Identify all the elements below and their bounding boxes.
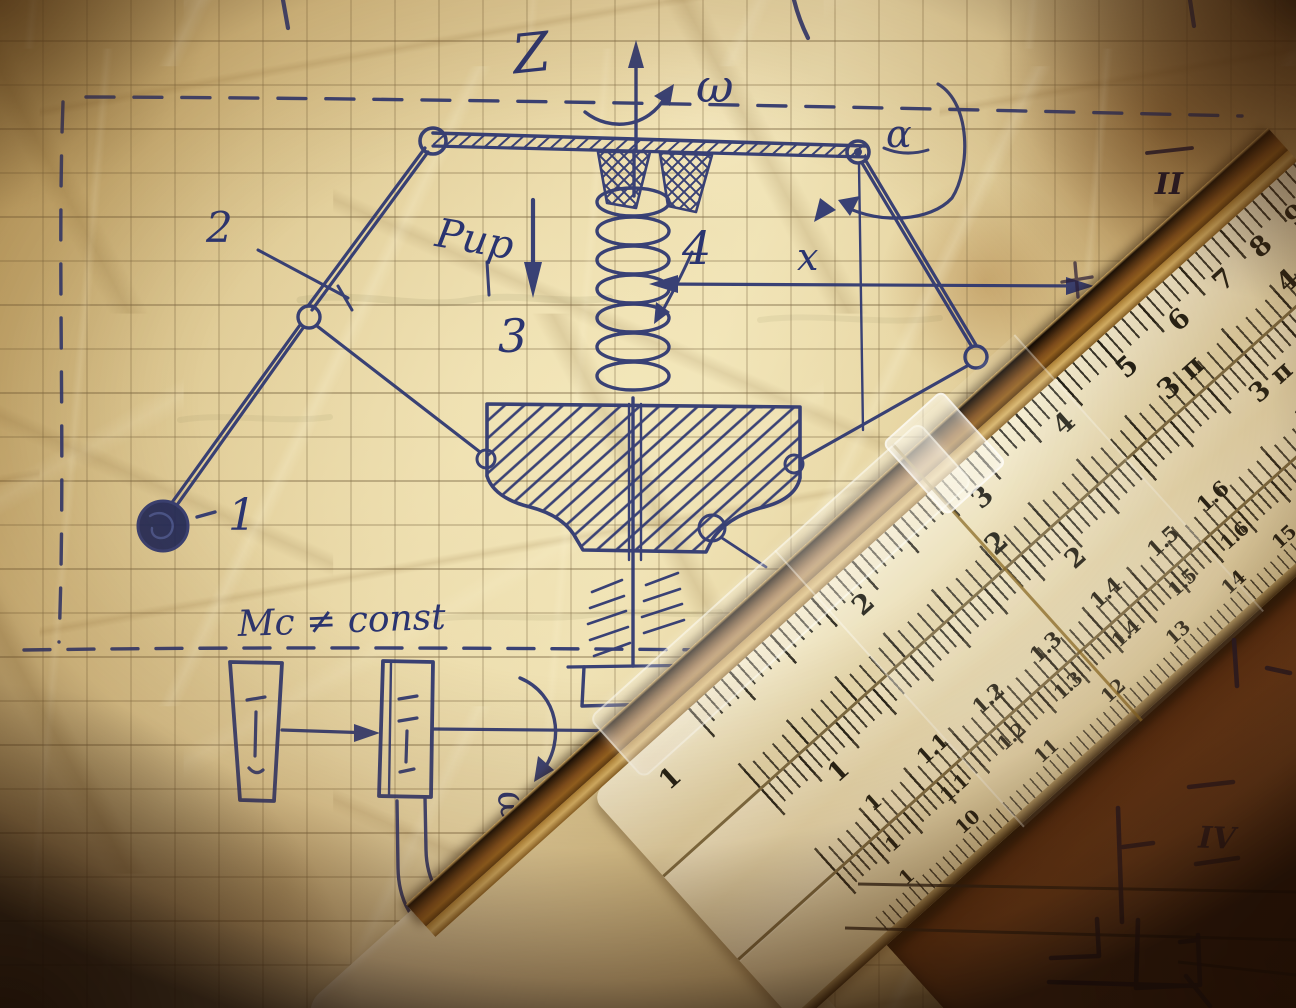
roman-ii-overbar: [1147, 148, 1192, 153]
roman-iv-label: IV: [1197, 820, 1239, 856]
photo-of-sketch-with-slide-rule: Z ω 2 Pup 3 4 1 x α Mc ≠ const ω 1234567…: [0, 0, 1296, 1008]
sketch-fragment-marks: [1049, 263, 1290, 1006]
roman-ii-label: II: [1154, 167, 1184, 202]
dark-paper-marks: II IV: [0, 0, 1296, 1008]
dark-ruled-lines: [845, 884, 1296, 975]
